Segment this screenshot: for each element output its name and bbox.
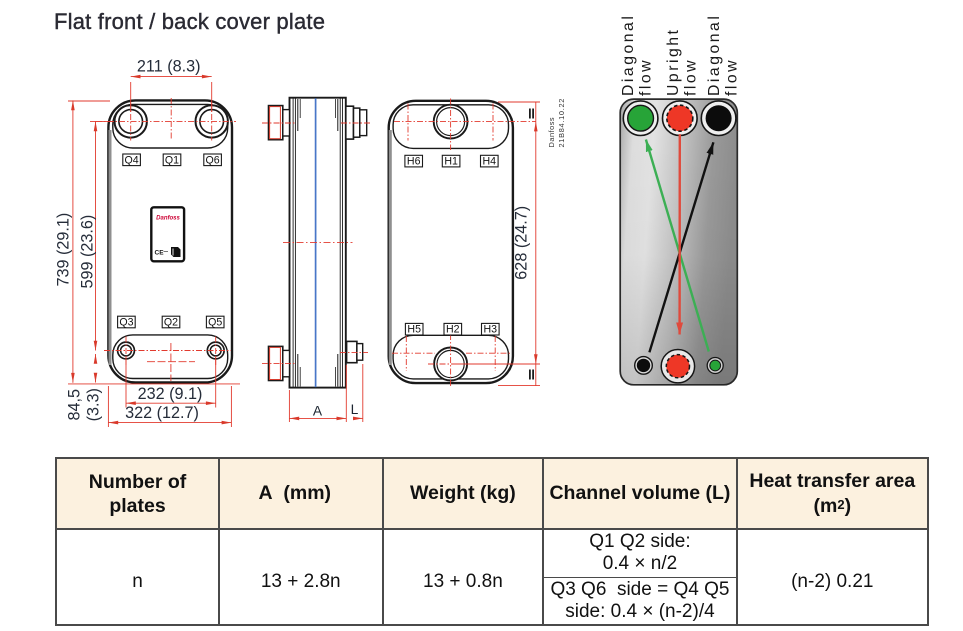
svg-text:H5: H5 [407,324,421,336]
svg-text:Q1: Q1 [165,154,179,166]
svg-text:H3: H3 [484,324,498,336]
svg-text:flow: flow [638,58,655,96]
svg-text:211 (8.3): 211 (8.3) [137,58,201,76]
svg-text:(3.3): (3.3) [85,388,103,421]
svg-text:flow: flow [683,58,700,96]
svg-text:232 (9.1): 232 (9.1) [138,385,203,403]
svg-text:Upright: Upright [665,28,682,96]
svg-text:Q2: Q2 [164,317,178,329]
svg-text:Q4: Q4 [125,154,139,166]
svg-text:flow: flow [724,58,741,96]
svg-text:CE: CE [155,250,165,257]
svg-text:739 (29.1): 739 (29.1) [55,213,73,287]
svg-text:Danfoss: Danfoss [547,117,556,148]
svg-text:84,5: 84,5 [66,389,84,421]
svg-text:599 (23.6): 599 (23.6) [79,215,97,289]
svg-text:Q3: Q3 [119,317,133,329]
svg-text:Q5: Q5 [208,317,222,329]
svg-text:322 (12.7): 322 (12.7) [125,404,199,422]
svg-text:628 (24.7): 628 (24.7) [512,206,530,280]
svg-text:Q6: Q6 [206,154,220,166]
svg-text:A: A [313,404,323,419]
svg-text:Danfoss: Danfoss [156,216,180,222]
svg-text:Diagonal: Diagonal [620,14,637,96]
svg-text:L: L [351,402,359,417]
svg-text:H1: H1 [444,156,458,168]
svg-text:H2: H2 [446,324,460,336]
svg-text:H4: H4 [483,156,497,168]
svg-text:21B84.10.22: 21B84.10.22 [557,98,566,148]
svg-text:Diagonal: Diagonal [706,14,723,96]
svg-text:H6: H6 [407,156,421,168]
